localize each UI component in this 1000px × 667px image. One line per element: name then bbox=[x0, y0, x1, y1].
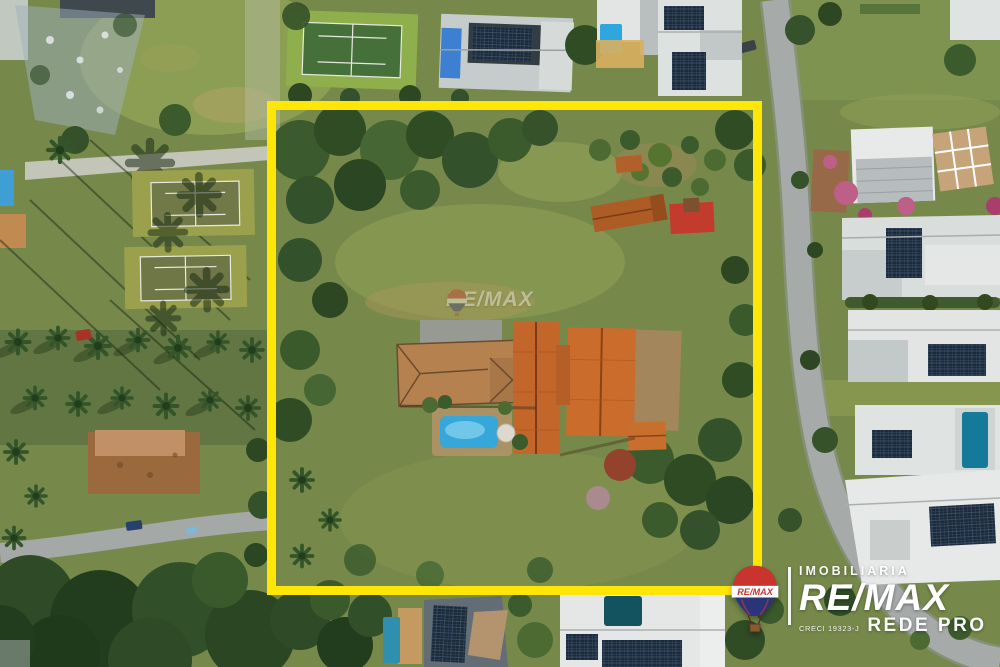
house-right-d bbox=[855, 405, 1000, 475]
detached-roof bbox=[628, 421, 667, 450]
pool bbox=[383, 617, 400, 663]
solar-panels bbox=[672, 52, 706, 90]
remax-branding: RE/MAX IMOBILIARIA RE/MAX CRECI 19323-J … bbox=[698, 558, 998, 666]
network-name: REDE PRO bbox=[867, 617, 986, 635]
deck bbox=[398, 608, 422, 664]
blue-tarp bbox=[440, 28, 462, 79]
solar-panels bbox=[602, 640, 682, 667]
top-tennis-court bbox=[280, 2, 419, 91]
small-pool-left-edge bbox=[0, 170, 14, 206]
pool-teal bbox=[962, 412, 988, 468]
branding-text-block: IMOBILIARIA RE/MAX CRECI 19323-J REDE PR… bbox=[799, 564, 987, 635]
aerial-photo: RE/MAX RE/MAX IMOBILIARIA RE/MAX CRECI 1… bbox=[0, 0, 1000, 667]
creci-number: CRECI 19323-J bbox=[799, 624, 859, 635]
brand-name: RE/MAX bbox=[799, 579, 987, 617]
pink-flowering-tree bbox=[834, 181, 858, 205]
connector-roof bbox=[556, 345, 570, 405]
orange-shed-small bbox=[615, 155, 642, 173]
solar-panels bbox=[886, 228, 922, 278]
dirt-patch bbox=[88, 430, 200, 494]
solar-panels bbox=[872, 430, 912, 458]
pool-umbrella bbox=[497, 424, 515, 442]
balloon-band-label: RE/MAX bbox=[737, 587, 774, 597]
solar-panels bbox=[431, 605, 468, 663]
house-white-solar-top bbox=[658, 0, 742, 96]
pink-flowering-tree bbox=[897, 197, 915, 215]
branding-divider bbox=[788, 567, 791, 625]
red-foliage-tree bbox=[604, 449, 636, 481]
solar-panels bbox=[929, 503, 996, 546]
house-right-b bbox=[842, 215, 1000, 300]
solar-panels bbox=[566, 634, 598, 660]
solar-panels bbox=[664, 6, 704, 30]
house-right-a2 bbox=[932, 127, 994, 192]
house-gray-solar-top bbox=[439, 14, 575, 93]
deck bbox=[596, 40, 644, 68]
light-pink-tree bbox=[586, 486, 610, 510]
pool-teal bbox=[604, 596, 642, 626]
agency-label: IMOBILIARIA bbox=[799, 564, 987, 578]
east-wing-roof bbox=[566, 327, 636, 436]
house-right-c bbox=[848, 310, 1000, 382]
solar-panels bbox=[928, 344, 986, 376]
solar-panels bbox=[472, 26, 533, 62]
house-right-a bbox=[851, 127, 936, 204]
remax-balloon-logo: RE/MAX bbox=[730, 564, 780, 636]
